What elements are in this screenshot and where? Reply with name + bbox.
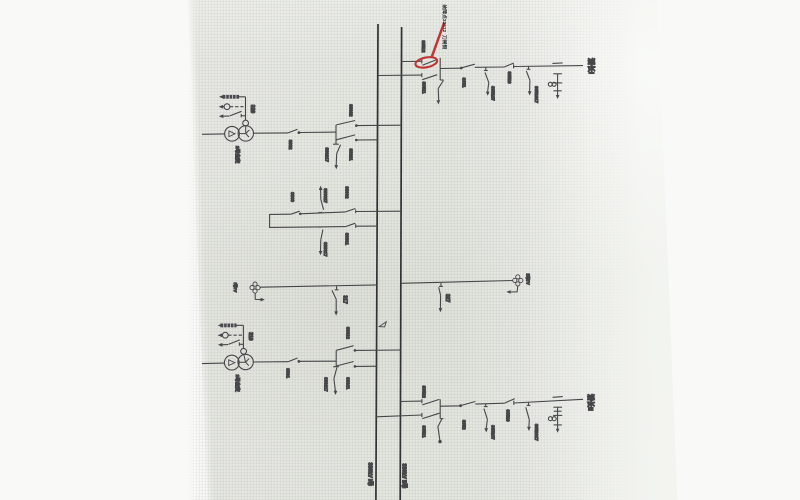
svg-text:3351: 3351 [462, 78, 467, 88]
svg-text:3352617: 3352617 [534, 424, 539, 441]
svg-text:33021: 33021 [348, 149, 353, 162]
svg-text:33516: 33516 [507, 72, 512, 85]
svg-text:2号主变: 2号主变 [234, 146, 241, 163]
svg-text:1号主变: 1号主变 [234, 375, 241, 392]
svg-text:310: 310 [247, 332, 253, 341]
svg-text:3302: 3302 [288, 140, 293, 150]
svg-text:潘长I: 潘长I [587, 58, 596, 74]
svg-text:330117: 330117 [323, 377, 328, 392]
svg-text:潘长II: 潘长II [587, 394, 596, 411]
svg-text:33526: 33526 [505, 410, 510, 423]
svg-text:3301: 3301 [286, 368, 291, 378]
svg-text:330217: 330217 [324, 148, 329, 163]
svg-text:317: 317 [342, 296, 348, 305]
svg-text:330017: 330017 [323, 242, 328, 257]
svg-text:3352: 3352 [461, 420, 466, 430]
svg-text:33521: 33521 [421, 426, 426, 439]
svg-text:33511: 33511 [421, 82, 426, 94]
svg-text:335267: 335267 [490, 425, 495, 440]
svg-text:327: 327 [444, 294, 450, 303]
svg-text:33012: 33012 [346, 327, 351, 340]
svg-text:33512: 33512 [421, 41, 426, 54]
svg-text:320: 320 [249, 105, 255, 114]
svg-text:33002: 33002 [345, 187, 350, 200]
svg-text:330kV I母: 330kV I母 [367, 463, 375, 487]
svg-text:330027: 330027 [323, 189, 328, 204]
svg-text:33022: 33022 [348, 104, 353, 117]
svg-text:335167: 335167 [490, 86, 495, 101]
svg-text:330kV II母: 330kV II母 [401, 464, 409, 489]
svg-text:33011: 33011 [346, 377, 351, 389]
svg-text:I母TV: I母TV [233, 283, 239, 293]
svg-text:II母TV: II母TV [524, 274, 531, 285]
svg-text:33522: 33522 [421, 386, 426, 399]
svg-text:33001: 33001 [345, 233, 350, 246]
svg-text:3300: 3300 [290, 192, 295, 202]
svg-text:3351617: 3351617 [534, 86, 539, 103]
svg-text:故障点33512 刀闸侧: 故障点33512 刀闸侧 [441, 5, 448, 50]
